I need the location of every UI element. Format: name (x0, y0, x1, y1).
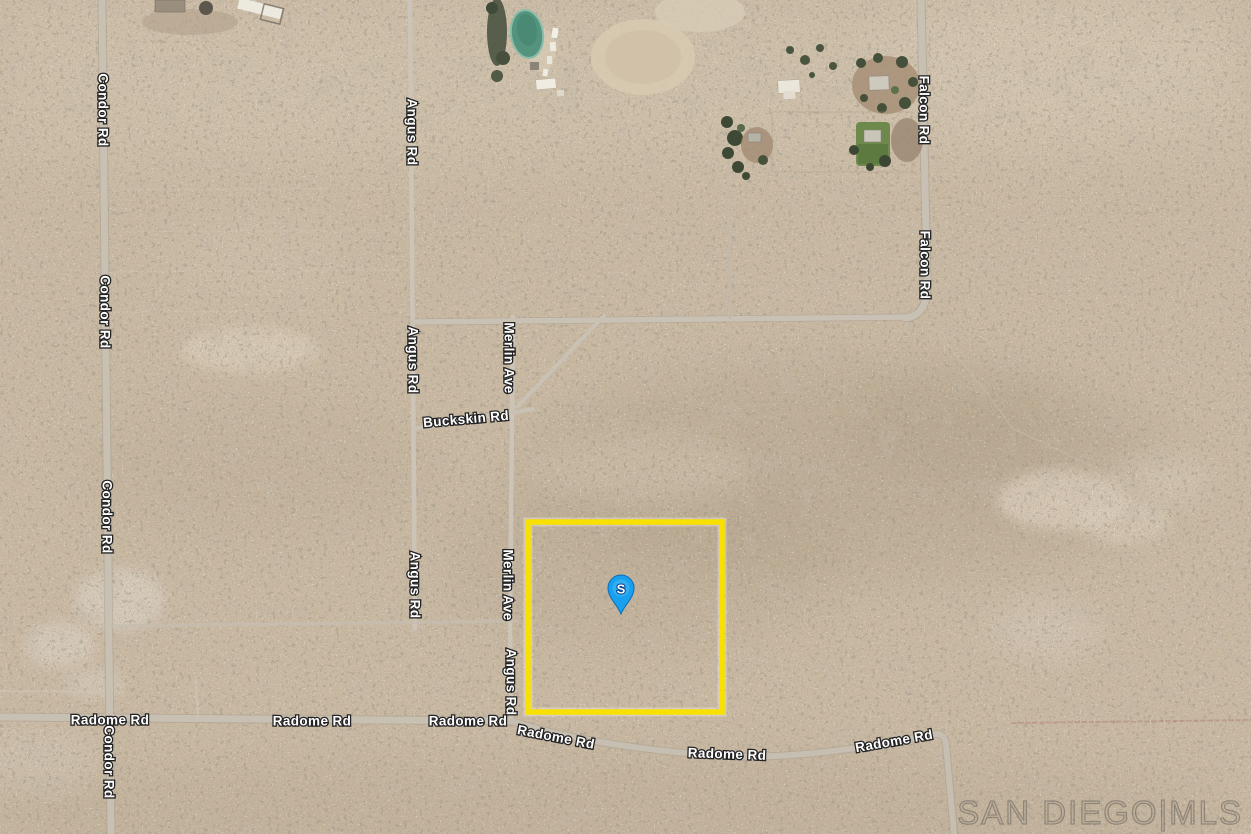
tree (879, 155, 891, 167)
road-label-falcon: Falcon Rd (918, 231, 933, 300)
tree (908, 77, 918, 87)
tree (800, 55, 810, 65)
road-label-angus: Angus Rd (408, 552, 423, 619)
vehicle (547, 56, 552, 64)
tree (786, 46, 794, 54)
building (748, 133, 761, 142)
tree (860, 94, 868, 102)
tree (721, 116, 733, 128)
tree (722, 147, 734, 159)
road-label-condor: Condor Rd (98, 275, 113, 348)
satellite-map-canvas[interactable]: Condor Rd Condor Rd Condor Rd Condor Rd … (0, 0, 1251, 834)
road-label-falcon: Falcon Rd (917, 76, 932, 145)
shed (557, 90, 564, 96)
tree (829, 62, 837, 70)
trailer (536, 78, 557, 90)
tree (873, 53, 883, 63)
tree (896, 56, 908, 68)
road-label-radome: Radome Rd (71, 713, 150, 728)
tree (727, 130, 743, 146)
driveway-vertical (728, 152, 730, 318)
tree (891, 86, 899, 94)
road-label-condor: Condor Rd (102, 725, 117, 798)
house (869, 76, 889, 91)
tree (742, 172, 750, 180)
tank (199, 1, 213, 15)
road-label-merlin: Merlin Ave (502, 322, 517, 393)
tree (496, 51, 510, 65)
road-label-angus: Angus Rd (406, 327, 421, 394)
road-label-angus-south: Angus Rd (504, 649, 519, 716)
tree (816, 44, 824, 52)
tree (899, 97, 911, 109)
road-label-angus: Angus Rd (405, 99, 420, 166)
road-label-condor: Condor Rd (100, 480, 115, 553)
tree (866, 163, 874, 171)
vehicle (550, 42, 557, 52)
map-svg: Condor Rd Condor Rd Condor Rd Condor Rd … (0, 0, 1251, 834)
tree (758, 155, 768, 165)
building (155, 0, 185, 12)
dirt-arena-inner (605, 30, 681, 84)
road-label-merlin: Merlin Ave (501, 549, 516, 620)
marker-letter: S (617, 582, 626, 597)
dirt-yard (741, 127, 773, 163)
tree (737, 124, 745, 132)
road-label-radome: Radome Rd (687, 745, 766, 763)
tree (809, 72, 815, 78)
tree (486, 2, 498, 14)
building-wing (783, 91, 795, 100)
road-label-radome: Radome Rd (429, 714, 508, 729)
tree (849, 145, 859, 155)
shed (530, 62, 539, 70)
tree (491, 70, 503, 82)
tree (732, 161, 744, 173)
road-label-condor: Condor Rd (96, 73, 111, 146)
track-west (0, 691, 102, 692)
dirt-patch (142, 9, 238, 35)
mls-watermark: SAN DIEGO|MLS (957, 794, 1243, 831)
house (864, 130, 881, 142)
tree (856, 58, 866, 68)
road-label-radome: Radome Rd (273, 714, 352, 729)
